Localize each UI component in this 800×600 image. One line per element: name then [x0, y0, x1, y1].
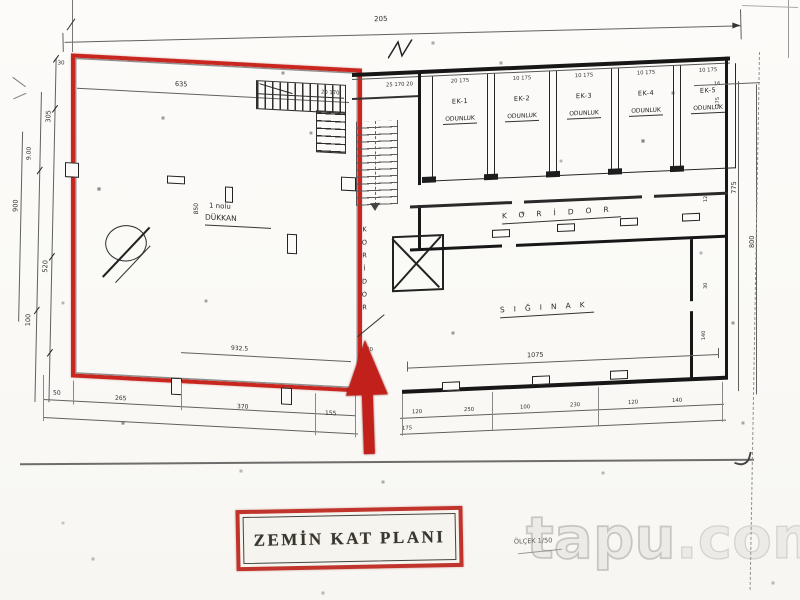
left-scribble-1	[12, 77, 26, 87]
lower-ext-2	[492, 392, 493, 430]
bottom-dim-370: 370	[237, 404, 248, 411]
niche-line	[352, 95, 418, 99]
cell-wall-foot-2	[484, 174, 498, 181]
storage-dims: 10 175	[619, 69, 673, 77]
cell-wall-foot-1	[422, 176, 436, 183]
wall-opening-3	[287, 234, 297, 255]
arrow-head	[344, 339, 388, 395]
shop-inner-width-label: 635	[175, 81, 187, 89]
sheet-fold-line	[20, 459, 754, 465]
lower-dim-140: 140	[672, 398, 682, 405]
left-dim-9-00: 9.00	[27, 147, 34, 161]
stair-down-arrow-icon	[370, 203, 380, 211]
top-total-dim-label: 205	[374, 15, 388, 23]
lower-ext-1	[402, 394, 403, 436]
lower-dim-175: 175	[402, 425, 412, 432]
scan-noise-specks	[0, 0, 2, 2]
storage-type: ODUNLUK	[567, 109, 601, 119]
corridor-upper-wall	[410, 192, 728, 208]
bottom-ext-3	[181, 382, 182, 410]
stair-top-dims: 25 170 20	[386, 81, 413, 88]
bottom-ext-1	[43, 375, 44, 421]
left-dim-900: 900	[12, 199, 20, 212]
shelter-dim-line	[407, 354, 719, 369]
shop-height-dim: 850	[194, 203, 201, 215]
corridor-stub-4	[682, 213, 700, 222]
storage-unit-ek1: 20 175 EK-1 ODUNLUK	[432, 74, 488, 181]
corridor-stub-3	[620, 218, 638, 227]
watermark-suffix: .com	[676, 504, 800, 572]
lower-dim-100: 100	[520, 404, 530, 411]
storage-type: ODUNLUK	[629, 106, 663, 116]
storage-unit-ek5: 10 175 EK-5 ODUNLUK	[680, 63, 736, 170]
lower-dim-120b: 120	[628, 400, 638, 407]
bottom-dim-155: 155	[325, 411, 336, 418]
storage-id: EK-3	[557, 91, 611, 101]
corridor-lower-wall	[410, 235, 728, 252]
plan-title-inner-frame: ZEMİN KAT PLANI	[243, 513, 457, 564]
scale-underline-scribble	[518, 549, 562, 555]
sheet-corner-line-h	[742, 5, 798, 8]
corridor-lower-gap	[502, 243, 516, 249]
scale-label: ÖLÇEK 1/50	[514, 537, 553, 546]
cell-wall-foot-4	[608, 168, 622, 175]
shop-bottom-inner-label: 932.5	[231, 346, 248, 354]
highlight-arrow-icon	[344, 337, 392, 460]
plan-title-box: ZEMİN KAT PLANI	[235, 506, 463, 571]
south-wall-stub-2	[532, 375, 550, 385]
storage-id: EK-5	[681, 85, 735, 95]
bottom-dim-50: 50	[53, 390, 61, 397]
lower-dim-230: 230	[570, 402, 580, 409]
storage-id: EK-2	[495, 93, 549, 103]
lower-ext-4	[722, 382, 723, 422]
interior-wall-west-upper	[418, 73, 421, 185]
lower-ext-3	[598, 387, 599, 425]
staircase-center-line	[375, 121, 376, 205]
break-mark-icon	[388, 39, 414, 62]
fold-line-curl	[734, 448, 752, 467]
building-right-wing-group: 25 170 20 16 20 175 EK-1 ODUNLUK 10 175 …	[352, 39, 792, 428]
left-dim-line-b	[34, 92, 41, 402]
bottom-dim-line-2	[43, 417, 358, 435]
right-dim-775: 775	[731, 181, 738, 194]
cell-wall-foot-5	[670, 166, 684, 173]
left-dim-520: 520	[42, 260, 50, 273]
cell-wall-foot-3	[546, 171, 560, 178]
scanned-floor-plan-sheet: 205 30 305 900 9.00 520 100 635 1 nolu D…	[0, 0, 800, 600]
storage-id: EK-1	[433, 96, 487, 106]
top-left-extension-line	[72, 0, 73, 52]
lower-dim-120a: 120	[412, 409, 422, 416]
left-scribble-2	[13, 93, 26, 100]
lower-dim-line-2	[400, 420, 726, 435]
bottom-ext-2	[73, 381, 74, 405]
left-wall-stub	[65, 162, 79, 178]
left-dim-100: 100	[25, 314, 33, 327]
corridor-door-gap-1	[512, 199, 524, 205]
right-dim-175: 175	[716, 97, 722, 107]
left-dim-line-c	[18, 132, 23, 322]
storage-type: ODUNLUK	[505, 112, 539, 122]
storage-dims: 10 175	[557, 72, 611, 80]
corridor-main-label: KORİDOR	[502, 205, 621, 224]
shop-plan-group: 635 1 nolu DÜKKAN 850 20 170 932.5 50 26…	[63, 50, 373, 411]
corridor-door-gap-2	[642, 194, 654, 200]
column-foot-2	[281, 387, 292, 405]
staircase-return-flight	[316, 110, 346, 154]
wall-opening-2	[225, 186, 233, 202]
bottom-ext-4	[315, 393, 316, 435]
stair-dim-left: 20 170	[321, 90, 340, 97]
bottom-dim-line-1	[43, 399, 355, 417]
right-dim-140: 140	[702, 330, 708, 340]
south-wall-stub-1	[442, 381, 460, 391]
top-dim-end-tick	[740, 9, 742, 39]
right-dim-30: 30	[704, 282, 710, 289]
staircase-lower-flight	[356, 120, 398, 206]
shelter-width-label: 1075	[527, 352, 544, 360]
bottom-dim-265: 265	[115, 396, 126, 403]
partition-gap	[690, 301, 693, 311]
corridor-stub-1	[492, 229, 510, 238]
corridor-stub-2	[557, 223, 575, 232]
storage-id: EK-4	[619, 88, 673, 98]
storage-unit-ek4: 10 175 EK-4 ODUNLUK	[618, 66, 674, 173]
shop-name-line1: 1 nolu	[209, 202, 231, 211]
south-wall-stub-3	[610, 370, 628, 380]
storage-dims: 20 175	[433, 77, 487, 85]
tapu-watermark: tapu.com	[526, 504, 800, 572]
right-dim-125: 125	[704, 192, 710, 202]
wall-opening-1	[167, 175, 185, 184]
plan-title: ZEMİN KAT PLANI	[253, 527, 445, 551]
shelter-dim-tick-l	[407, 362, 408, 372]
lower-dim-line-1	[400, 404, 724, 419]
storage-dims: 10 175	[495, 74, 549, 82]
shelter-dim-tick-r	[718, 348, 719, 358]
storage-unit-ek3: 10 175 EK-3 ODUNLUK	[556, 69, 612, 176]
storage-unit-ek2: 10 175 EK-2 ODUNLUK	[494, 71, 550, 178]
lower-dim-250: 250	[464, 407, 474, 414]
storage-type: ODUNLUK	[443, 115, 477, 125]
shelter-label: SIĞINAK	[500, 301, 594, 318]
storage-dims: 10 175	[681, 66, 735, 74]
arrow-shaft	[362, 392, 375, 454]
right-dim-line-a	[738, 81, 739, 391]
dim-arrowhead-icon	[732, 22, 740, 28]
